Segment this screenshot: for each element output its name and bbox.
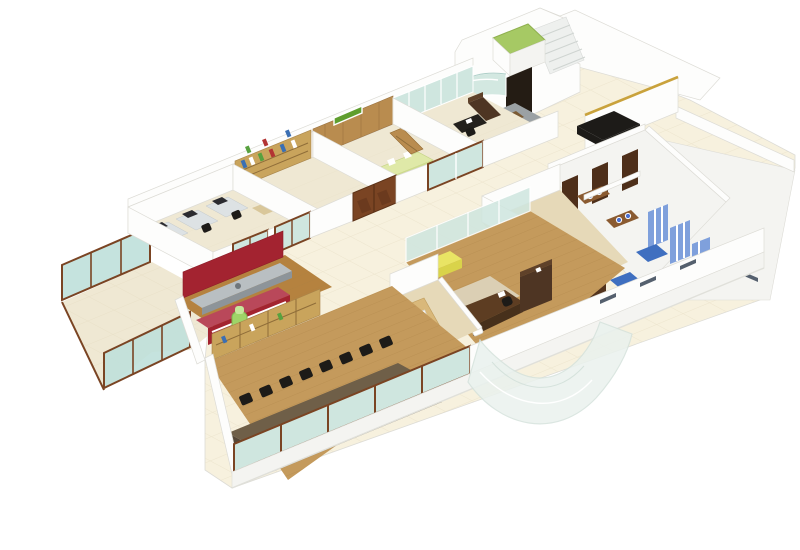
floor-plan-svg bbox=[0, 0, 800, 550]
floor-plan-render bbox=[0, 0, 800, 550]
